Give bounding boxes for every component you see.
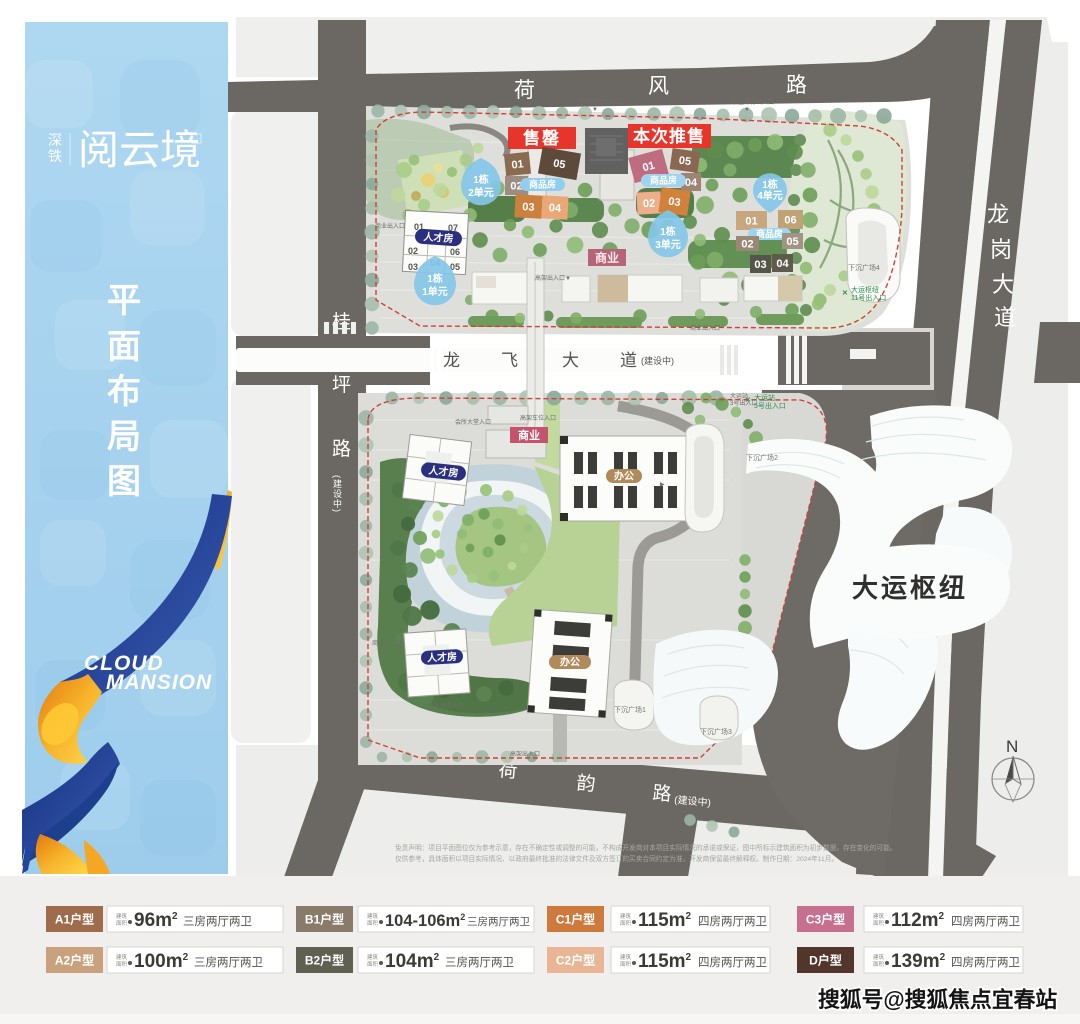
svg-text:道: 道 [994, 305, 1016, 330]
svg-text:办公: 办公 [614, 470, 634, 483]
svg-text:03: 03 [408, 262, 418, 272]
svg-text:四房两厅两卫: 四房两厅两卫 [951, 956, 1020, 969]
svg-text:建筑: 建筑 [367, 912, 379, 920]
svg-text:商业: 商业 [595, 250, 619, 265]
svg-text:▼: ▼ [744, 107, 750, 113]
svg-text:大: 大 [562, 351, 579, 370]
svg-text:02: 02 [408, 246, 418, 256]
svg-text:3单元: 3单元 [655, 238, 681, 251]
svg-text:本次推售: 本次推售 [633, 126, 705, 146]
svg-text:面积: 面积 [116, 961, 128, 968]
svg-text:商业: 商业 [518, 428, 540, 442]
svg-text:06: 06 [450, 247, 460, 257]
svg-text:四房两厅两卫: 四房两厅两卫 [951, 915, 1020, 928]
svg-text:▶: ▶ [660, 482, 665, 488]
svg-text:11号出入口: 11号出入口 [851, 293, 886, 302]
svg-text:01: 01 [511, 158, 524, 171]
svg-text:坪: 坪 [332, 374, 351, 396]
svg-text:龙: 龙 [987, 202, 1009, 227]
svg-text:✕: ✕ [745, 397, 751, 404]
svg-text:1栋: 1栋 [427, 272, 443, 285]
svg-text:高架出入口: 高架出入口 [510, 750, 540, 758]
svg-text:布: 布 [107, 373, 141, 411]
svg-text:小区车行出入口: 小区车行出入口 [732, 98, 774, 106]
svg-text:1栋: 1栋 [473, 173, 489, 186]
svg-text:C1户型: C1户型 [556, 912, 595, 927]
svg-text:04: 04 [685, 177, 698, 189]
svg-text:面积: 面积 [367, 920, 379, 927]
svg-text:办公: 办公 [560, 656, 580, 669]
svg-text:115m2: 115m2 [638, 951, 692, 972]
svg-text:三房两厅两卫: 三房两厅两卫 [183, 915, 252, 928]
svg-text:商业出入口: 商业出入口 [690, 324, 720, 332]
svg-text:100m2: 100m2 [134, 951, 189, 972]
svg-text:道: 道 [620, 351, 637, 370]
svg-text:商品房: 商品房 [756, 228, 783, 239]
svg-text:下沉广场1: 下沉广场1 [614, 705, 646, 714]
svg-text:搜狐号@搜狐焦点宜春站: 搜狐号@搜狐焦点宜春站 [818, 987, 1057, 1012]
svg-text:铁: 铁 [48, 148, 62, 164]
svg-text:112m2: 112m2 [891, 910, 945, 931]
svg-text:住宅大堂入口: 住宅大堂入口 [428, 702, 464, 710]
svg-text:5号出入口: 5号出入口 [754, 401, 786, 410]
svg-text:1栋: 1栋 [660, 225, 676, 238]
svg-text:4单元: 4单元 [757, 189, 783, 202]
svg-text:02: 02 [741, 238, 753, 250]
svg-text:路: 路 [652, 782, 673, 806]
svg-text:高架出入口▼: 高架出入口▼ [535, 274, 571, 282]
svg-text:平: 平 [107, 282, 141, 320]
svg-text:售罄: 售罄 [523, 128, 561, 148]
svg-text:高架车位入口: 高架车位入口 [520, 414, 556, 422]
svg-text:05: 05 [552, 157, 566, 171]
svg-text:N: N [1006, 737, 1018, 756]
svg-text:B2户型: B2户型 [305, 953, 344, 968]
svg-text:路: 路 [332, 438, 351, 460]
svg-text:大运枢纽: 大运枢纽 [851, 285, 879, 294]
svg-text:荷: 荷 [514, 79, 535, 102]
svg-text:阅云境: 阅云境 [78, 127, 201, 173]
svg-text:商品房: 商品房 [650, 175, 677, 186]
svg-text:面积: 面积 [873, 961, 885, 968]
svg-text:104m2: 104m2 [385, 951, 440, 972]
svg-text:B1户型: B1户型 [305, 912, 344, 927]
svg-text:115m2: 115m2 [638, 910, 692, 931]
svg-text:飞: 飞 [501, 351, 518, 370]
svg-text:C3户型: C3户型 [806, 912, 845, 927]
svg-text:建筑: 建筑 [620, 953, 632, 961]
svg-text:(建设中): (建设中) [332, 475, 342, 513]
svg-text:▼: ▼ [592, 107, 598, 113]
svg-text:02: 02 [643, 198, 656, 211]
svg-text:深: 深 [48, 132, 62, 148]
svg-text:D户型: D户型 [809, 953, 842, 968]
svg-text:建筑: 建筑 [116, 912, 128, 920]
svg-text:下沉广场3: 下沉广场3 [700, 727, 732, 736]
svg-text:01: 01 [745, 215, 757, 227]
svg-text:03: 03 [522, 201, 535, 214]
svg-text:面积: 面积 [620, 920, 632, 927]
svg-text:大运枢纽: 大运枢纽 [852, 573, 968, 603]
svg-text:面: 面 [107, 328, 141, 366]
svg-text:建筑: 建筑 [367, 953, 379, 961]
svg-text:仅供参考，具体面积以项目实际情况、以政府最终批准的法律文件及: 仅供参考，具体面积以项目实际情况、以政府最终批准的法律文件及双方签订的买卖合同约… [395, 854, 838, 863]
svg-text:03: 03 [667, 196, 681, 210]
svg-text:(建设中): (建设中) [641, 355, 674, 366]
svg-text:A1户型: A1户型 [55, 912, 94, 927]
svg-text:面积: 面积 [116, 920, 128, 927]
svg-text:05: 05 [786, 236, 798, 248]
svg-text:三房两厅两卫: 三房两厅两卫 [467, 915, 530, 928]
svg-text:龙: 龙 [443, 351, 460, 370]
svg-text:四房两厅两卫: 四房两厅两卫 [698, 915, 767, 928]
svg-text:岗: 岗 [990, 237, 1012, 262]
svg-text:96m2: 96m2 [134, 910, 178, 931]
svg-text:04: 04 [549, 202, 563, 215]
svg-text:05: 05 [678, 155, 692, 169]
svg-text:下沉广场4: 下沉广场4 [848, 263, 880, 272]
svg-text:1栋: 1栋 [762, 178, 778, 191]
svg-text:建筑: 建筑 [873, 953, 885, 961]
svg-text:商业出入口: 商业出入口 [372, 639, 402, 647]
svg-text:A2户型: A2户型 [55, 953, 94, 968]
svg-text:商业出入口: 商业出入口 [375, 222, 405, 230]
svg-text:四房两厅两卫: 四房两厅两卫 [698, 956, 767, 969]
svg-text:建筑: 建筑 [116, 953, 128, 961]
svg-text:2单元: 2单元 [468, 186, 494, 199]
svg-text:有轨电车出入口: 有轨电车出入口 [580, 98, 622, 106]
svg-text:1单元: 1单元 [422, 285, 448, 298]
svg-text:03: 03 [754, 259, 766, 271]
svg-text:路: 路 [786, 74, 807, 97]
svg-text:三房两厅两卫: 三房两厅两卫 [194, 956, 263, 969]
svg-text:06: 06 [784, 214, 796, 226]
svg-text:免责声明：项目平面图位仅为参考示意，存在不确定性或调整的可能: 免责声明：项目平面图位仅为参考示意，存在不确定性或调整的可能，不构成开发商对本项… [395, 843, 897, 852]
svg-text:104-106m2: 104-106m2 [385, 912, 465, 930]
svg-text:04: 04 [776, 258, 789, 270]
svg-text:会所大堂入口: 会所大堂入口 [455, 418, 491, 426]
svg-text:三房两厅两卫: 三房两厅两卫 [445, 956, 514, 969]
svg-text:大: 大 [992, 272, 1014, 297]
svg-text:大运站: 大运站 [754, 393, 775, 402]
svg-text:建筑: 建筑 [620, 912, 632, 920]
svg-text:✕: ✕ [842, 290, 848, 297]
svg-text:面积: 面积 [620, 961, 632, 968]
svg-text:建筑: 建筑 [873, 912, 885, 920]
svg-text:图: 图 [107, 463, 141, 501]
svg-text:面积: 面积 [873, 920, 885, 927]
svg-text:风: 风 [648, 75, 669, 98]
svg-text:商品房: 商品房 [529, 179, 556, 190]
svg-text:局: 局 [107, 418, 141, 456]
svg-text:面积: 面积 [367, 961, 379, 968]
svg-text:139m2: 139m2 [891, 951, 946, 972]
svg-text:C2户型: C2户型 [556, 953, 595, 968]
svg-text:MANSION: MANSION [106, 671, 212, 694]
svg-text:下沉广场2: 下沉广场2 [746, 453, 778, 462]
svg-text:韵: 韵 [576, 772, 597, 796]
